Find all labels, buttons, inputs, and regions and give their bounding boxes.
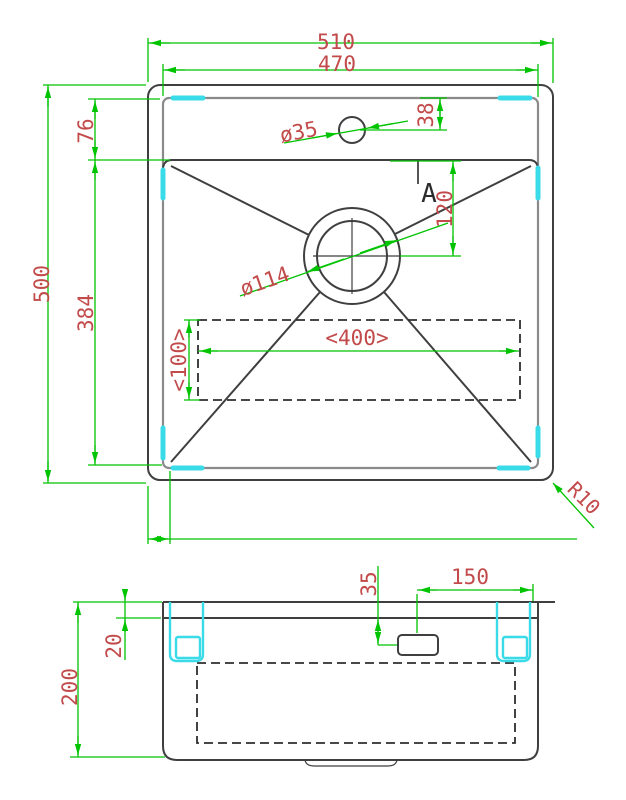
dim-label-overall-depth: 500 [30, 265, 54, 303]
dim-label-drain-offset-vertical: 35 [357, 571, 381, 596]
dim-label-overall-width: 510 [317, 30, 355, 54]
dim-label-rim-height: 20 [102, 633, 126, 658]
dim-label-inner-width: 470 [318, 52, 356, 76]
technical-drawing: 510 470 500 76 384 38 ø35 ø114 120 <400>… [0, 0, 626, 800]
dim-label-deck-depth: 76 [74, 118, 98, 143]
sink-drawing-canvas: 510 470 500 76 384 38 ø35 ø114 120 <400>… [0, 0, 626, 800]
dim-label-drain-offset-horizontal: 150 [451, 565, 489, 589]
dim-label-pad-width: <400> [325, 326, 388, 350]
dim-label-faucet-offset: 38 [414, 102, 438, 127]
dim-label-overall-height: 200 [58, 668, 82, 706]
dim-label-bowl-depth: 384 [74, 294, 98, 332]
section-label-a: A [421, 179, 437, 209]
dim-label-pad-height: <100> [167, 328, 191, 391]
